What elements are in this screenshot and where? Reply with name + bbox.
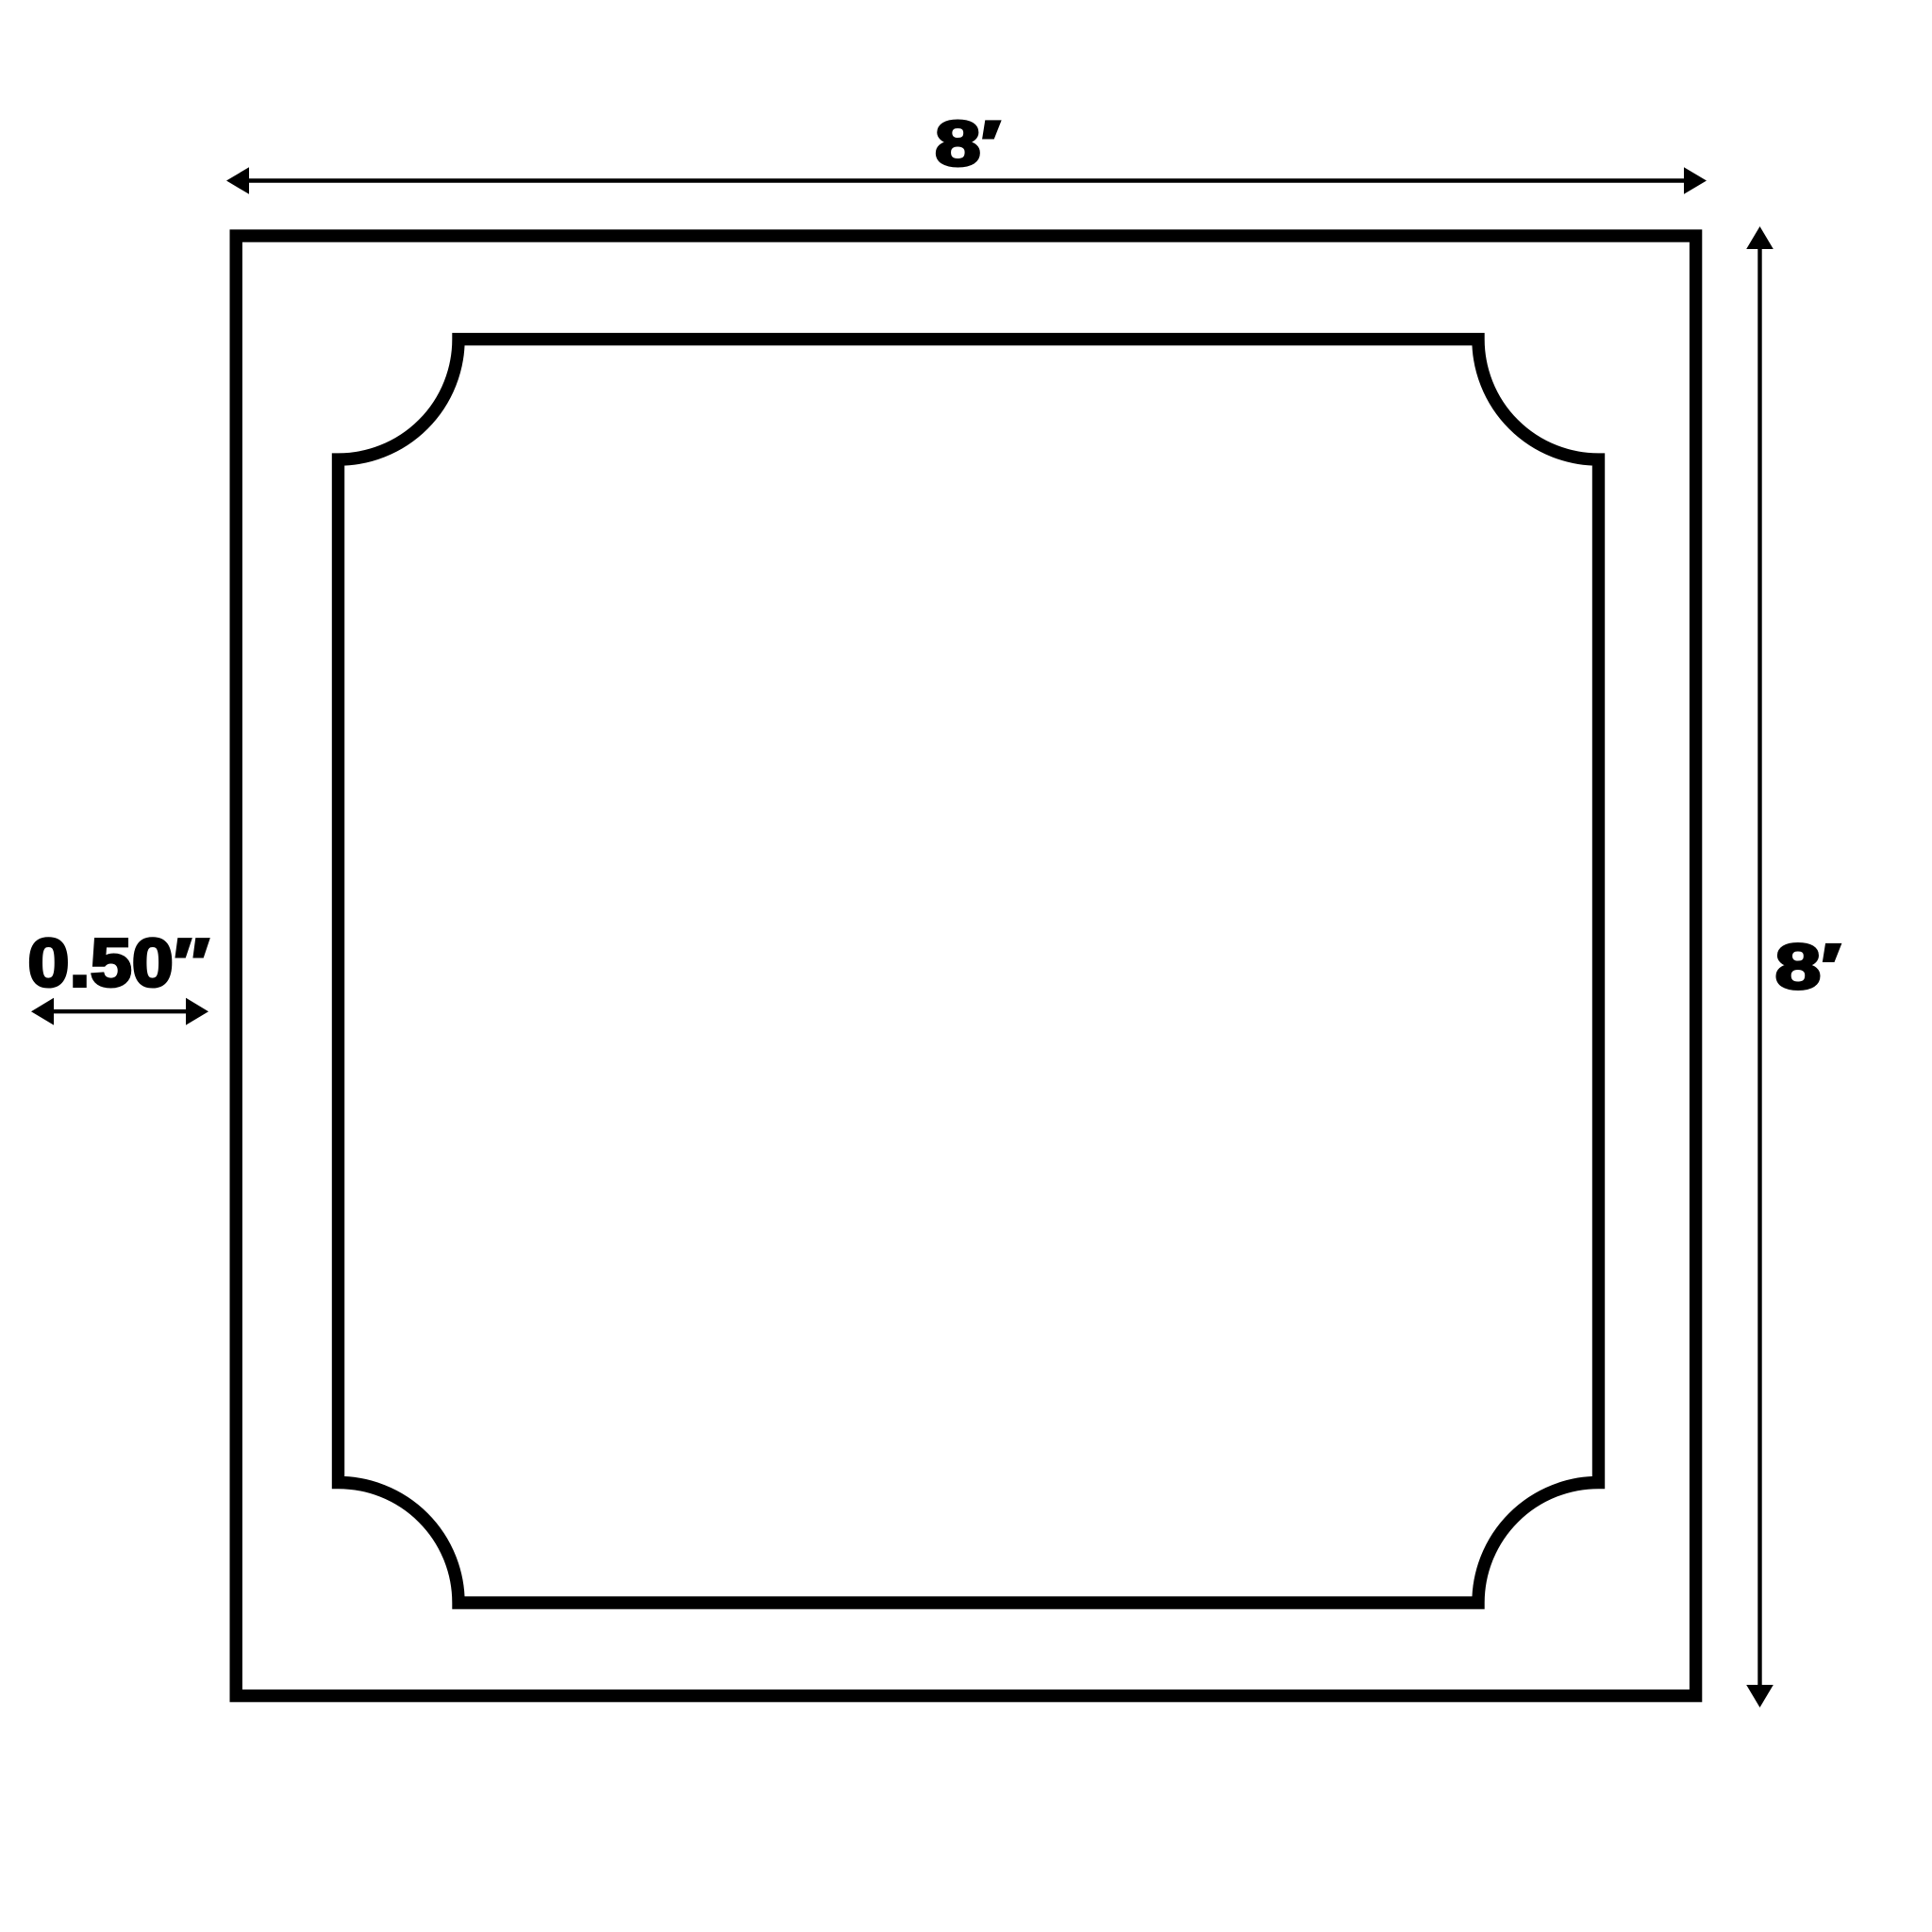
svg-text:8′: 8′ <box>1775 931 1841 1003</box>
svg-text:0.50″: 0.50″ <box>27 925 209 1001</box>
svg-text:8′: 8′ <box>935 108 1001 180</box>
